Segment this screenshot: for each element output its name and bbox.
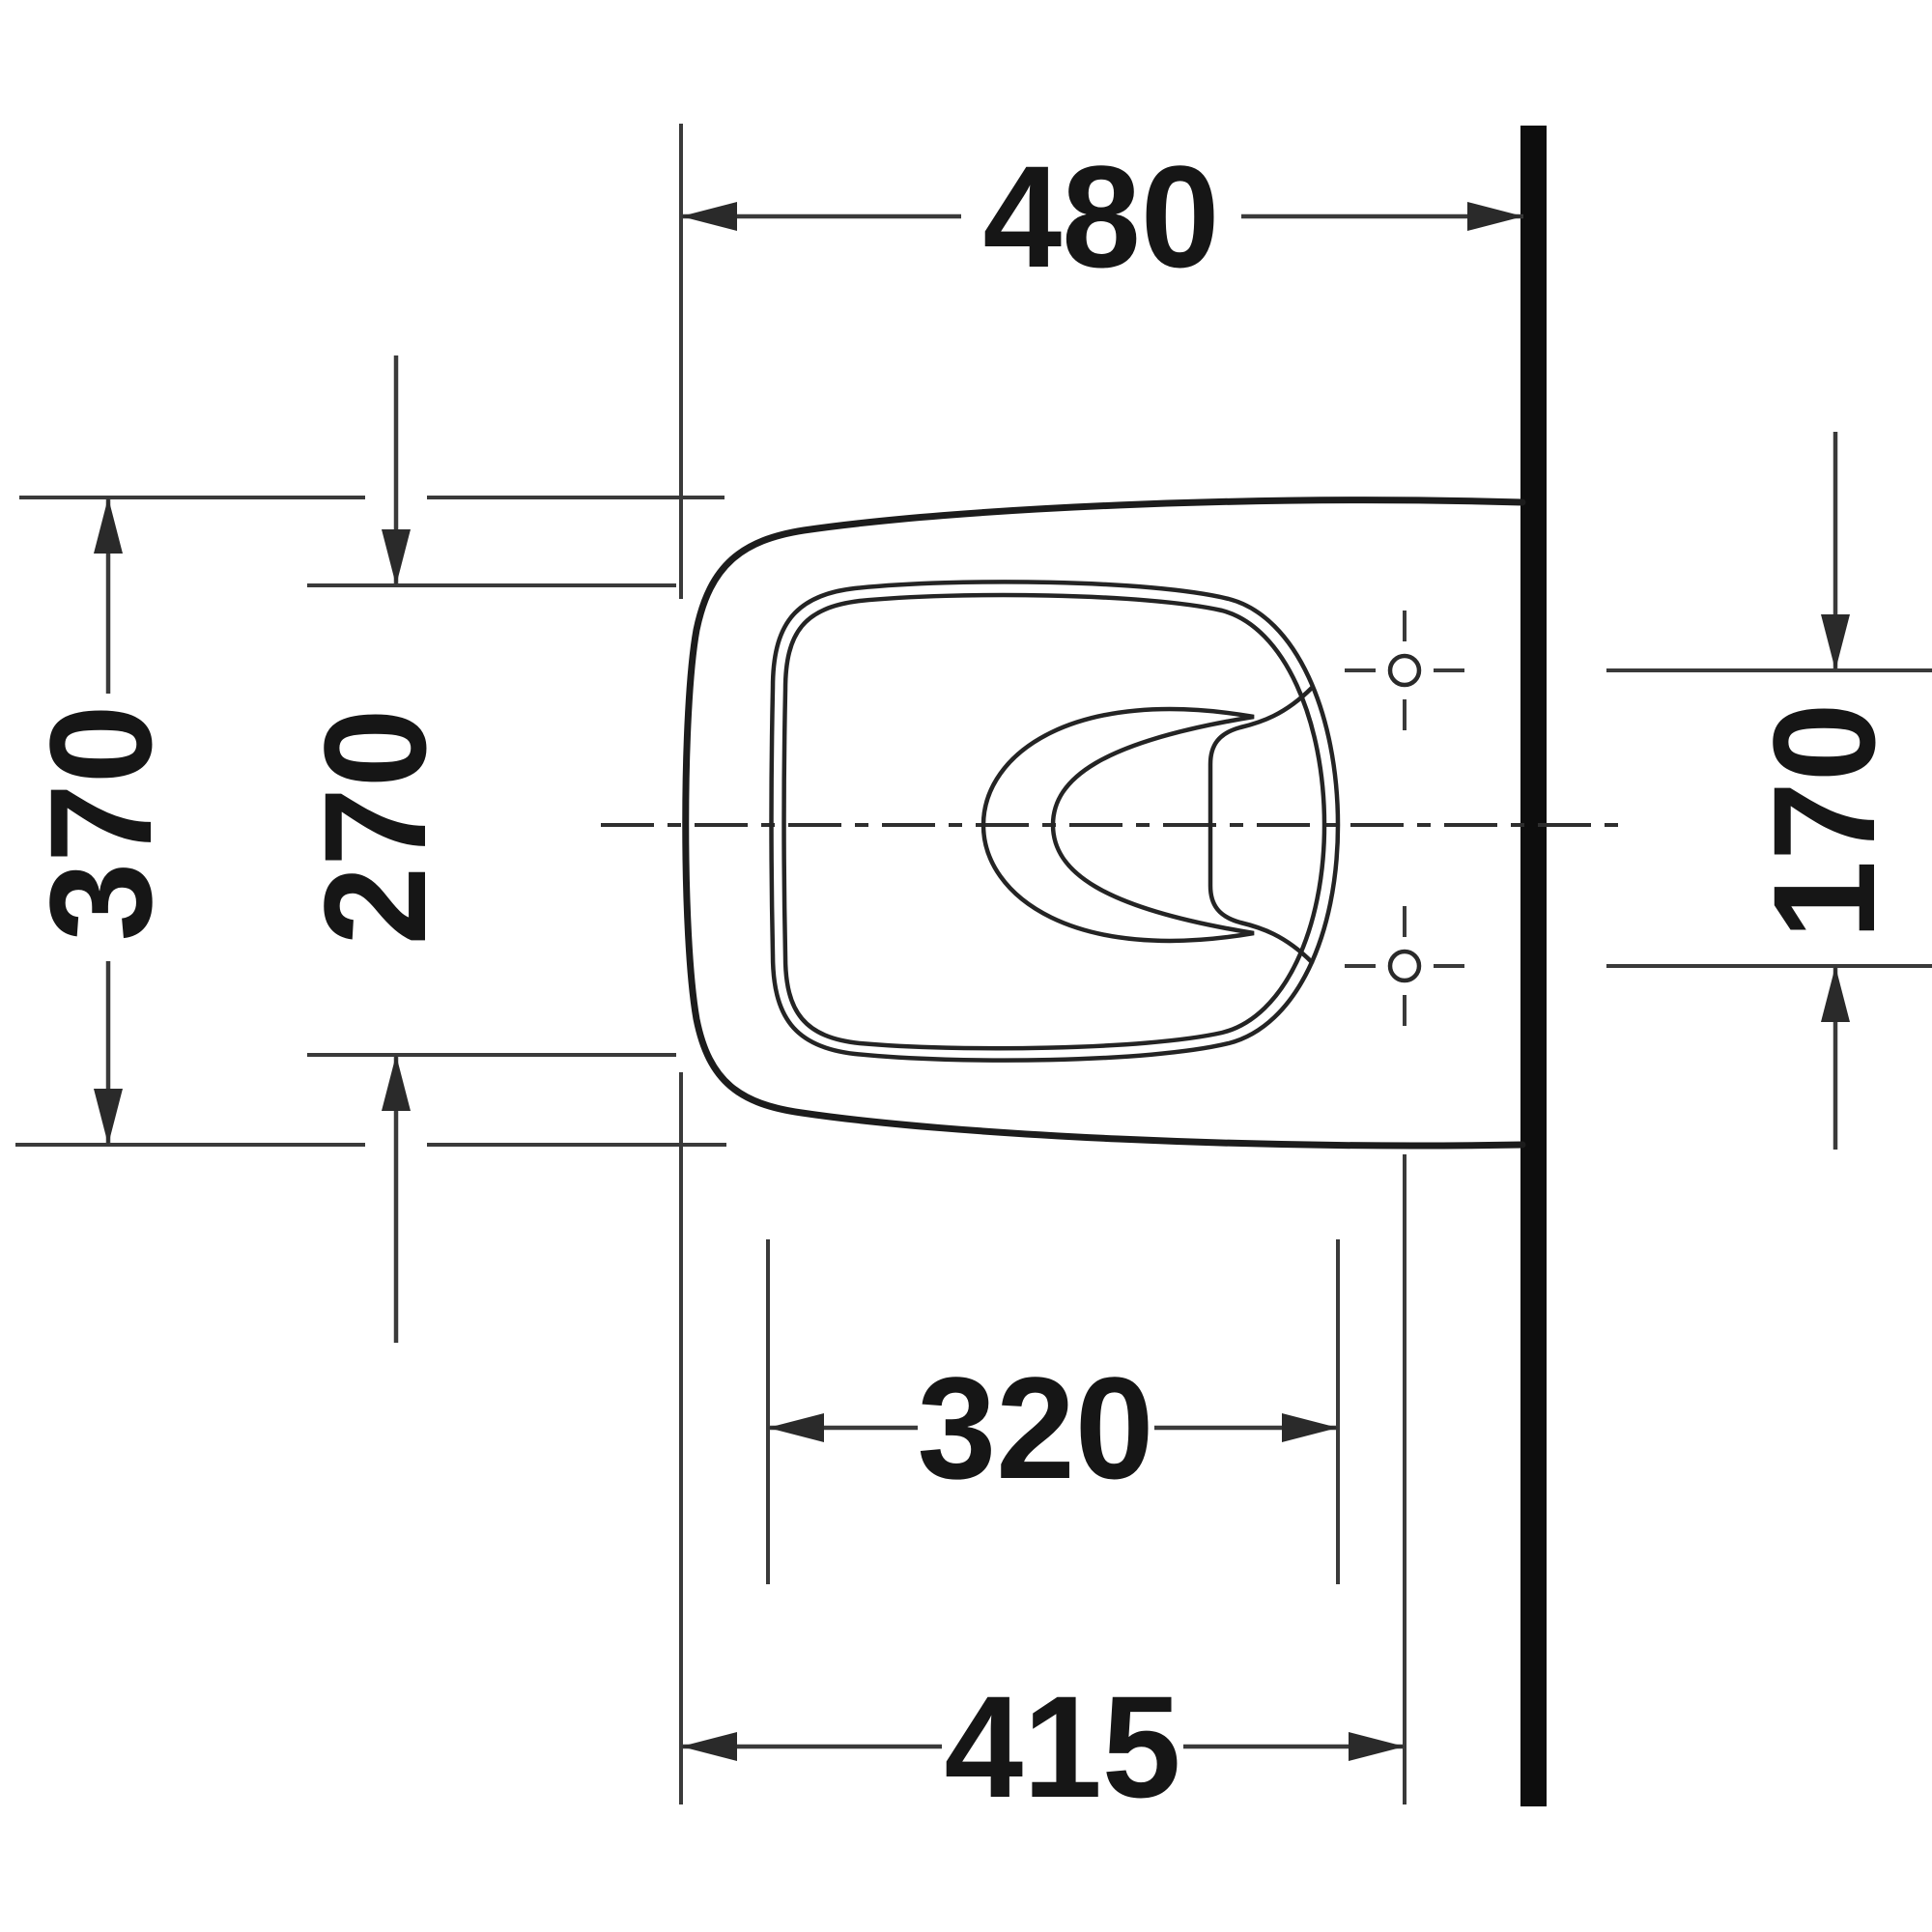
dimension-415: 415 [681, 1665, 1405, 1828]
dimension-370: 370 [19, 497, 182, 1145]
technical-drawing: 480 370 270 170 320 415 [0, 0, 1932, 1932]
dimension-480: 480 [681, 135, 1523, 298]
arrow-up-icon [382, 1055, 411, 1111]
arrow-right-icon [1467, 202, 1523, 231]
wall-section-bar [1520, 126, 1547, 1806]
arrow-up-icon [94, 497, 123, 554]
dim-label-320: 320 [918, 1347, 1154, 1509]
arrow-left-icon [681, 1732, 737, 1761]
hole-circle [1390, 656, 1419, 685]
extension-lines [15, 124, 1932, 1804]
dimension-170: 170 [1743, 432, 1905, 1150]
arrow-down-icon [94, 1089, 123, 1145]
dimension-270: 270 [294, 355, 456, 1343]
mounting-hole-bottom [1345, 906, 1464, 1026]
arrow-left-icon [768, 1413, 824, 1442]
arrow-down-icon [1821, 614, 1850, 670]
dimension-320: 320 [768, 1347, 1338, 1509]
mounting-hole-top [1345, 611, 1464, 730]
dim-label-170: 170 [1743, 703, 1905, 940]
arrow-up-icon [1821, 966, 1850, 1022]
arrow-right-icon [1349, 1732, 1405, 1761]
dim-label-270: 270 [294, 709, 456, 946]
arrow-left-icon [681, 202, 737, 231]
dim-label-370: 370 [19, 705, 182, 942]
hole-circle [1390, 952, 1419, 980]
arrow-right-icon [1282, 1413, 1338, 1442]
dim-label-415: 415 [945, 1665, 1181, 1828]
arrow-down-icon [382, 529, 411, 585]
dim-label-480: 480 [983, 135, 1220, 298]
